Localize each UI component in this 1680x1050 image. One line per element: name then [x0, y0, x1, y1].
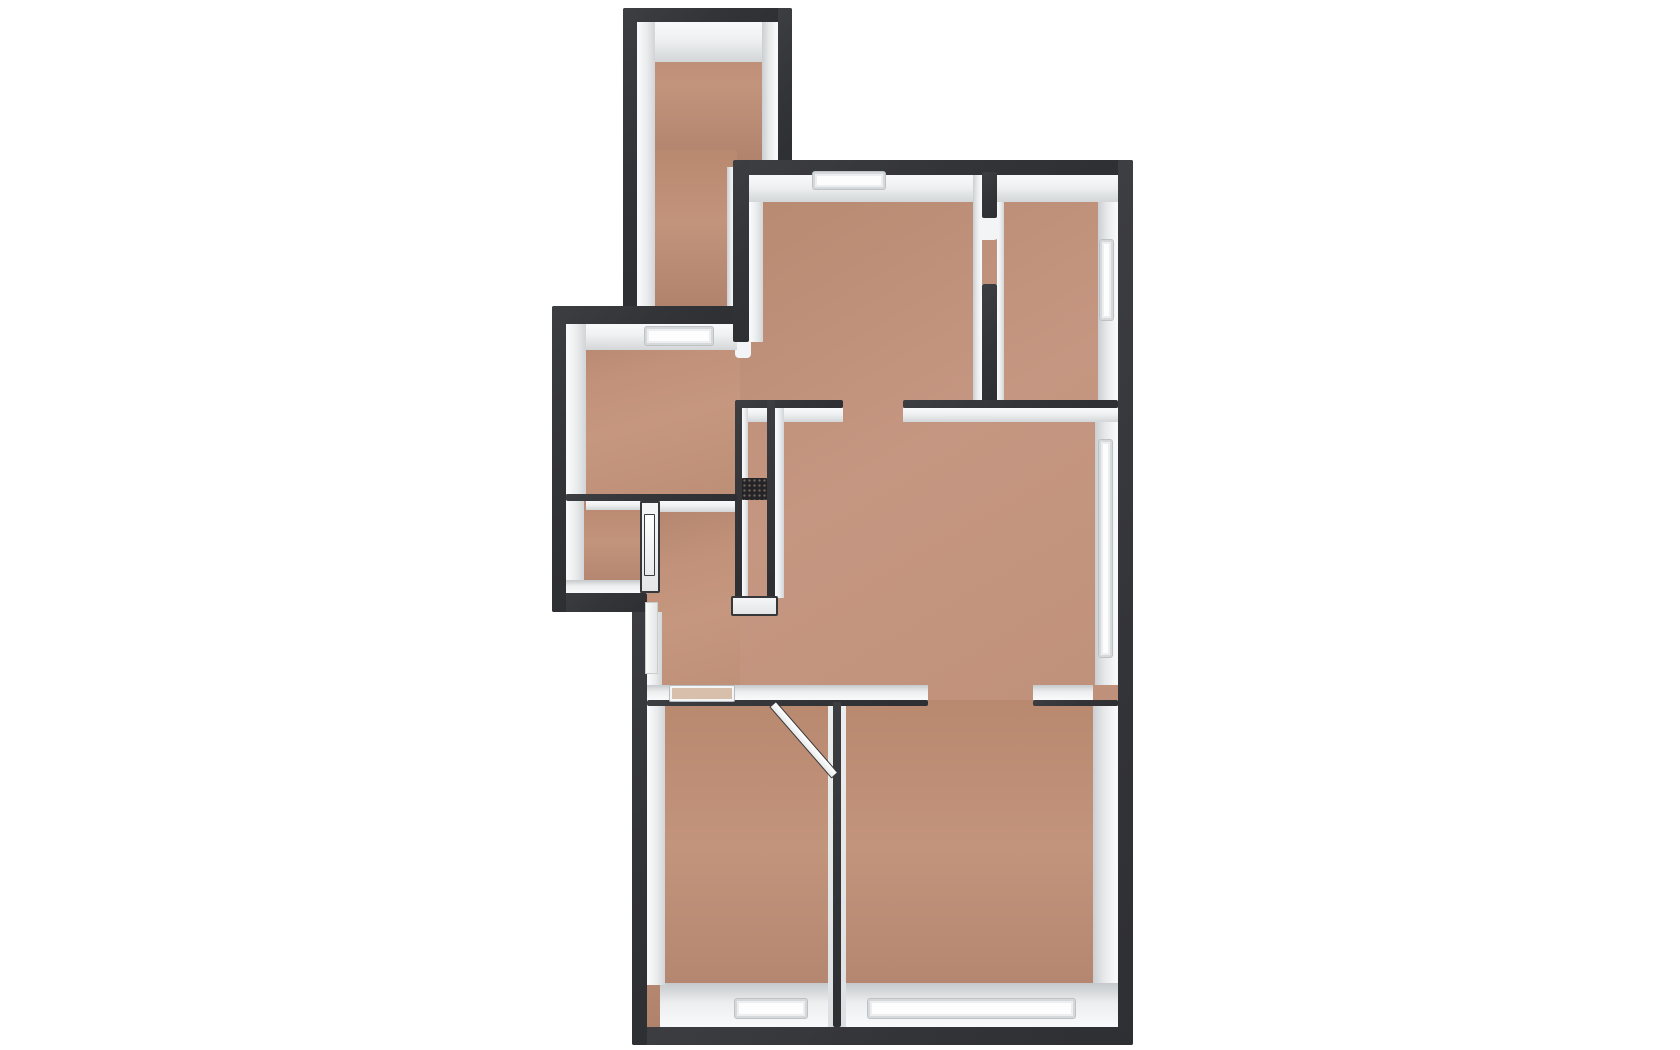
- window-top-center: [813, 172, 885, 189]
- wall-face-narrow-room-west: [637, 22, 655, 310]
- apartment-plan: [0, 0, 1680, 1050]
- wall-face-midleft-west: [566, 324, 586, 494]
- wall-outer-south: [632, 1027, 1133, 1045]
- wall-outer-north-narrow-room: [623, 8, 792, 22]
- wall-interior-bottom-divider: [833, 702, 841, 1027]
- wall-face-divider-east: [841, 706, 846, 1027]
- wall-face-smallroom-north: [586, 501, 640, 510]
- wall-interior-midleft-north: [552, 306, 742, 324]
- wall-face-north-main: [749, 175, 1118, 202]
- floorplan-render: [0, 0, 1680, 1050]
- window-bottom-left: [735, 999, 807, 1018]
- wall-outer-south-notch: [552, 593, 647, 612]
- wall-interior-row-lower-right: [1033, 700, 1118, 706]
- wall-face-narrow-room-east: [762, 22, 778, 162]
- wall-face-row-upper-left: [737, 408, 843, 422]
- wall-outer-east: [1118, 160, 1133, 1045]
- wall-face-closet-inner: [742, 408, 748, 598]
- wall-interior-topright-divider-lower: [982, 284, 997, 407]
- window-mid-left: [645, 327, 713, 345]
- service-shaft: [742, 478, 767, 500]
- wall-closet-east: [767, 400, 775, 600]
- wall-face-row-upper-right: [903, 408, 1118, 422]
- wall-face-east-bottom: [1093, 706, 1118, 985]
- wall-face-bottomleft-west: [647, 706, 665, 985]
- window-bottom-right: [868, 999, 1075, 1018]
- wall-outer-west-midleft: [552, 306, 566, 612]
- wall-interior-smallroom-north: [566, 494, 737, 501]
- wall-face-closet-east: [775, 408, 784, 598]
- wall-face-smallroom-south: [566, 580, 640, 593]
- wall-interior-bigroom-west: [733, 160, 749, 342]
- wall-face-narrow-room-north: [637, 22, 778, 62]
- wall-face-hall-north: [660, 501, 737, 512]
- wall-interior-row-upper-left: [737, 400, 843, 408]
- wall-niche-hallway: [645, 602, 658, 674]
- wall-interior-topright-divider-upper: [982, 172, 997, 218]
- wall-outer-north-main: [735, 160, 1133, 175]
- wall-face-smallroom-west: [566, 501, 584, 582]
- wall-interior-row-upper-right: [903, 400, 1118, 408]
- door-leaf-small-room: [644, 514, 655, 576]
- window-living-east: [1099, 440, 1112, 657]
- window-top-right: [1100, 240, 1113, 320]
- door-threshold-bottom-left: [670, 686, 734, 701]
- floor-room-bottom-right: [835, 700, 1120, 1030]
- wall-outer-west-narrow-room: [623, 8, 637, 310]
- wall-outer-east-narrow-room: [778, 8, 792, 162]
- floor-central-living-area: [740, 170, 1120, 706]
- wall-face-row-lower-right: [1033, 685, 1093, 700]
- closet-endcap: [731, 596, 778, 616]
